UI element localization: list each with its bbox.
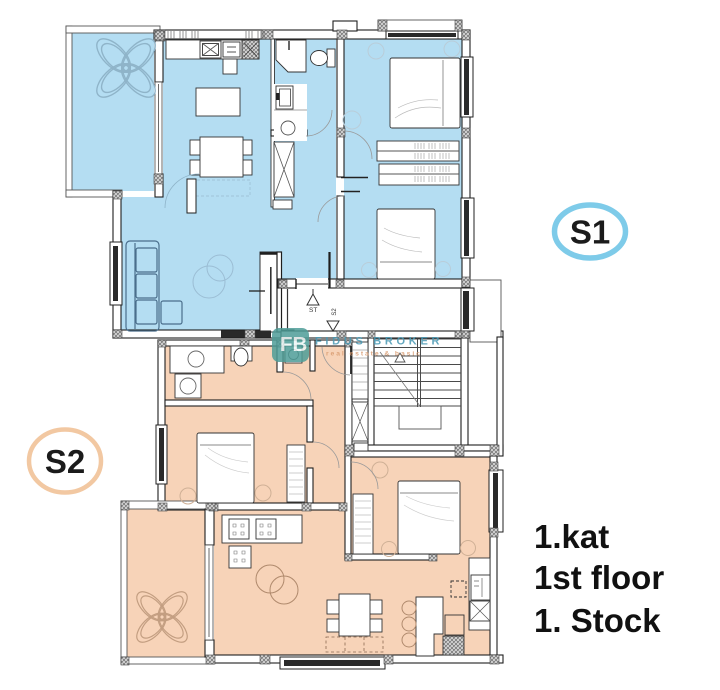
- svg-text:S2: S2: [45, 443, 85, 480]
- svg-text:ST: ST: [309, 307, 317, 314]
- svg-text:1. Stock: 1. Stock: [534, 602, 661, 639]
- svg-text:1st floor: 1st floor: [534, 559, 664, 596]
- svg-text:real estate & basic: real estate & basic: [326, 351, 422, 358]
- svg-text:FB: FB: [280, 333, 307, 356]
- svg-text:S2: S2: [332, 308, 338, 316]
- svg-text:S1: S1: [570, 214, 610, 251]
- svg-text:FIDUS BROKER: FIDUS BROKER: [315, 336, 443, 348]
- svg-text:1.kat: 1.kat: [534, 518, 609, 555]
